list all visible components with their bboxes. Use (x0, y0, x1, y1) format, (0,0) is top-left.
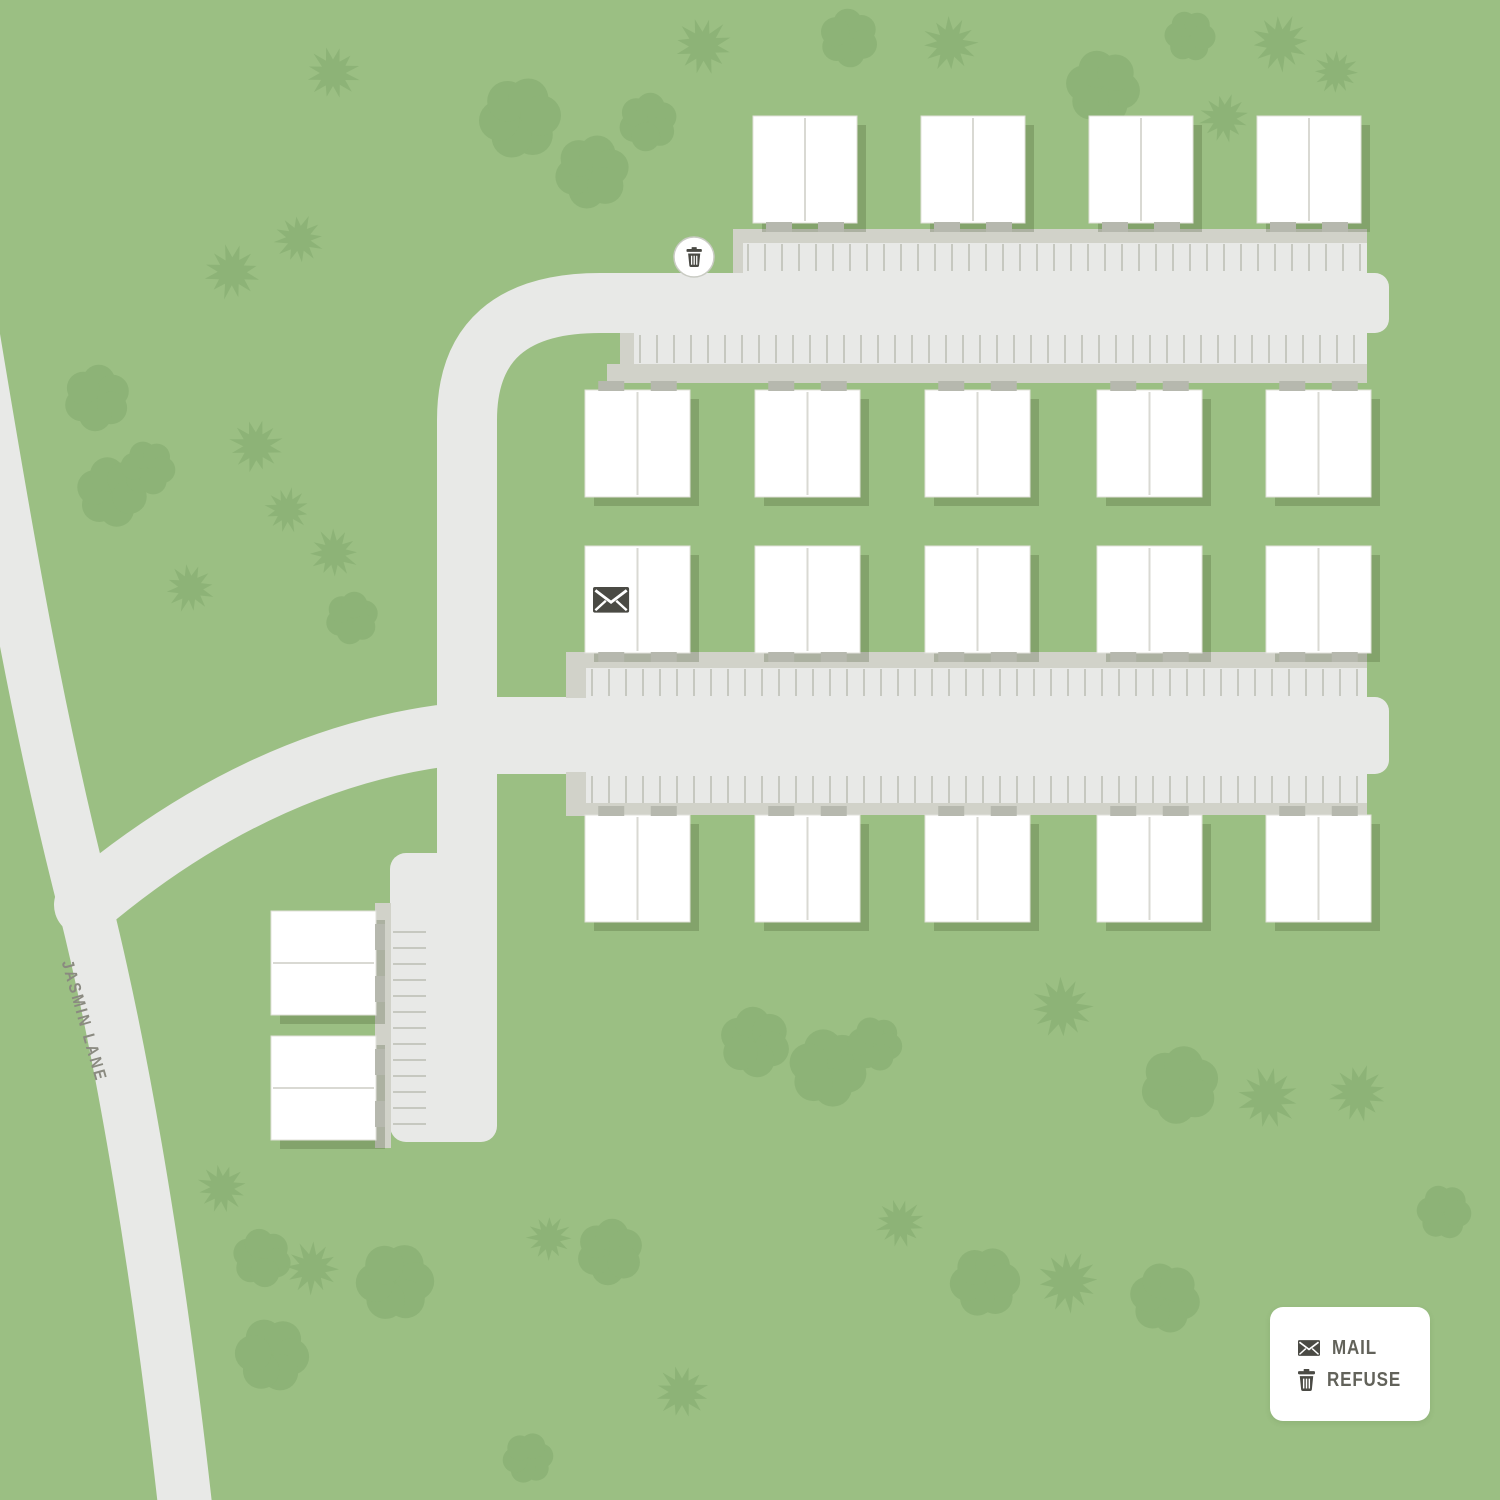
legend-item-mail: MAIL (1298, 1337, 1430, 1360)
tree (526, 1217, 572, 1261)
sidewalk (566, 772, 586, 816)
entry-step (598, 381, 624, 391)
building[interactable] (753, 116, 866, 232)
tree (555, 136, 628, 209)
entry-step (651, 652, 677, 662)
tree (265, 487, 308, 532)
tree (1033, 977, 1094, 1036)
tree (1329, 1065, 1384, 1121)
sidewalk (566, 652, 586, 698)
entry-step (375, 1101, 385, 1127)
building[interactable] (271, 911, 385, 1024)
entry-step (598, 806, 624, 816)
building[interactable] (1097, 381, 1211, 506)
sidewalk (620, 333, 634, 378)
entry-step (1154, 222, 1180, 232)
entry-step (991, 381, 1017, 391)
tree (1417, 1186, 1472, 1238)
entry-step (375, 1049, 385, 1075)
tree (924, 16, 979, 69)
tree (1315, 51, 1358, 93)
entry-step (1163, 806, 1189, 816)
mail-marker[interactable] (593, 587, 629, 613)
entry-step (375, 976, 385, 1002)
entry-step (598, 652, 624, 662)
tree (950, 1248, 1020, 1315)
legend: MAIL REFUSE (1270, 1307, 1430, 1421)
entry-step (1279, 806, 1305, 816)
entry-step (1102, 222, 1128, 232)
entry-step (1163, 381, 1189, 391)
entry-step (651, 806, 677, 816)
tree (121, 442, 176, 495)
building[interactable] (755, 546, 869, 662)
building[interactable] (1097, 806, 1211, 931)
entry-step (986, 222, 1012, 232)
tree (876, 1200, 924, 1247)
building[interactable] (925, 381, 1039, 506)
tree (1066, 51, 1140, 123)
tree (1254, 16, 1308, 73)
sidewalk (566, 803, 1367, 815)
tree (310, 529, 357, 577)
tree (578, 1219, 642, 1285)
tree (65, 365, 129, 431)
building[interactable] (1266, 546, 1380, 662)
entry-step (1110, 806, 1136, 816)
tree (657, 1366, 708, 1416)
entry-step (938, 652, 964, 662)
building[interactable] (755, 381, 869, 506)
tree (620, 93, 677, 151)
entry-step (938, 806, 964, 816)
tree (308, 47, 360, 97)
parking-pavement (490, 697, 1360, 774)
tree (235, 1320, 309, 1391)
tree (1130, 1264, 1200, 1333)
tree (198, 1165, 246, 1212)
entry-step (1332, 652, 1358, 662)
sidewalk (607, 364, 1367, 383)
tree (1142, 1046, 1218, 1124)
building[interactable] (755, 806, 869, 931)
building[interactable] (1257, 116, 1370, 232)
entry-step (934, 222, 960, 232)
parking-pavement (633, 333, 1367, 366)
entry-step (766, 222, 792, 232)
tree (1239, 1068, 1297, 1127)
building[interactable] (585, 381, 699, 506)
entry-step (1279, 652, 1305, 662)
refuse-marker[interactable] (674, 237, 714, 277)
tree (503, 1433, 554, 1482)
building[interactable] (585, 806, 699, 931)
mail-icon (1298, 1340, 1320, 1356)
entry-step (818, 222, 844, 232)
entry-step (375, 924, 385, 950)
tree (1165, 12, 1216, 60)
tree (479, 79, 561, 158)
building[interactable] (1097, 546, 1211, 662)
parking-pavement (586, 667, 1367, 698)
entry-step (768, 652, 794, 662)
parking-pavement (1345, 697, 1389, 774)
building[interactable] (925, 546, 1039, 662)
building[interactable] (921, 116, 1034, 232)
tree (233, 1229, 290, 1287)
tree (205, 244, 259, 299)
entry-step (1279, 381, 1305, 391)
tree (286, 1242, 339, 1296)
entry-step (768, 806, 794, 816)
tree (229, 421, 282, 472)
entry-step (1110, 652, 1136, 662)
refuse-icon (1298, 1369, 1315, 1391)
entry-step (991, 652, 1017, 662)
entry-step (651, 381, 677, 391)
tree (356, 1245, 434, 1319)
tree (326, 592, 377, 645)
tree (167, 564, 214, 612)
entry-step (821, 652, 847, 662)
entry-step (821, 381, 847, 391)
parking-pavement (586, 774, 1367, 805)
legend-label-refuse: REFUSE (1327, 1369, 1401, 1392)
entry-step (821, 806, 847, 816)
sidewalk (733, 229, 743, 273)
entry-step (1270, 222, 1296, 232)
entry-step (1110, 381, 1136, 391)
building[interactable] (925, 806, 1039, 931)
building[interactable] (1089, 116, 1202, 232)
site-map-stage: JASMIN LANE MAIL REFUSE (0, 0, 1500, 1500)
entry-step (1332, 381, 1358, 391)
tree (677, 19, 731, 74)
entry-step (938, 381, 964, 391)
site-map (0, 0, 1500, 1500)
parking-pavement (1345, 273, 1389, 333)
parking-pavement (390, 853, 497, 1142)
tree (721, 1007, 789, 1077)
tree (274, 216, 323, 262)
entry-step (991, 806, 1017, 816)
entry-step (1332, 806, 1358, 816)
building[interactable] (1266, 381, 1380, 506)
legend-item-refuse: REFUSE (1298, 1369, 1430, 1392)
tree (1199, 94, 1248, 142)
entry-step (1322, 222, 1348, 232)
tree (821, 9, 877, 68)
tree (1040, 1253, 1098, 1314)
legend-label-mail: MAIL (1332, 1337, 1377, 1360)
building[interactable] (1266, 806, 1380, 931)
entry-step (1163, 652, 1189, 662)
tree (848, 1018, 902, 1071)
entry-step (768, 381, 794, 391)
mail-icon (593, 587, 629, 613)
building[interactable] (271, 1036, 385, 1149)
